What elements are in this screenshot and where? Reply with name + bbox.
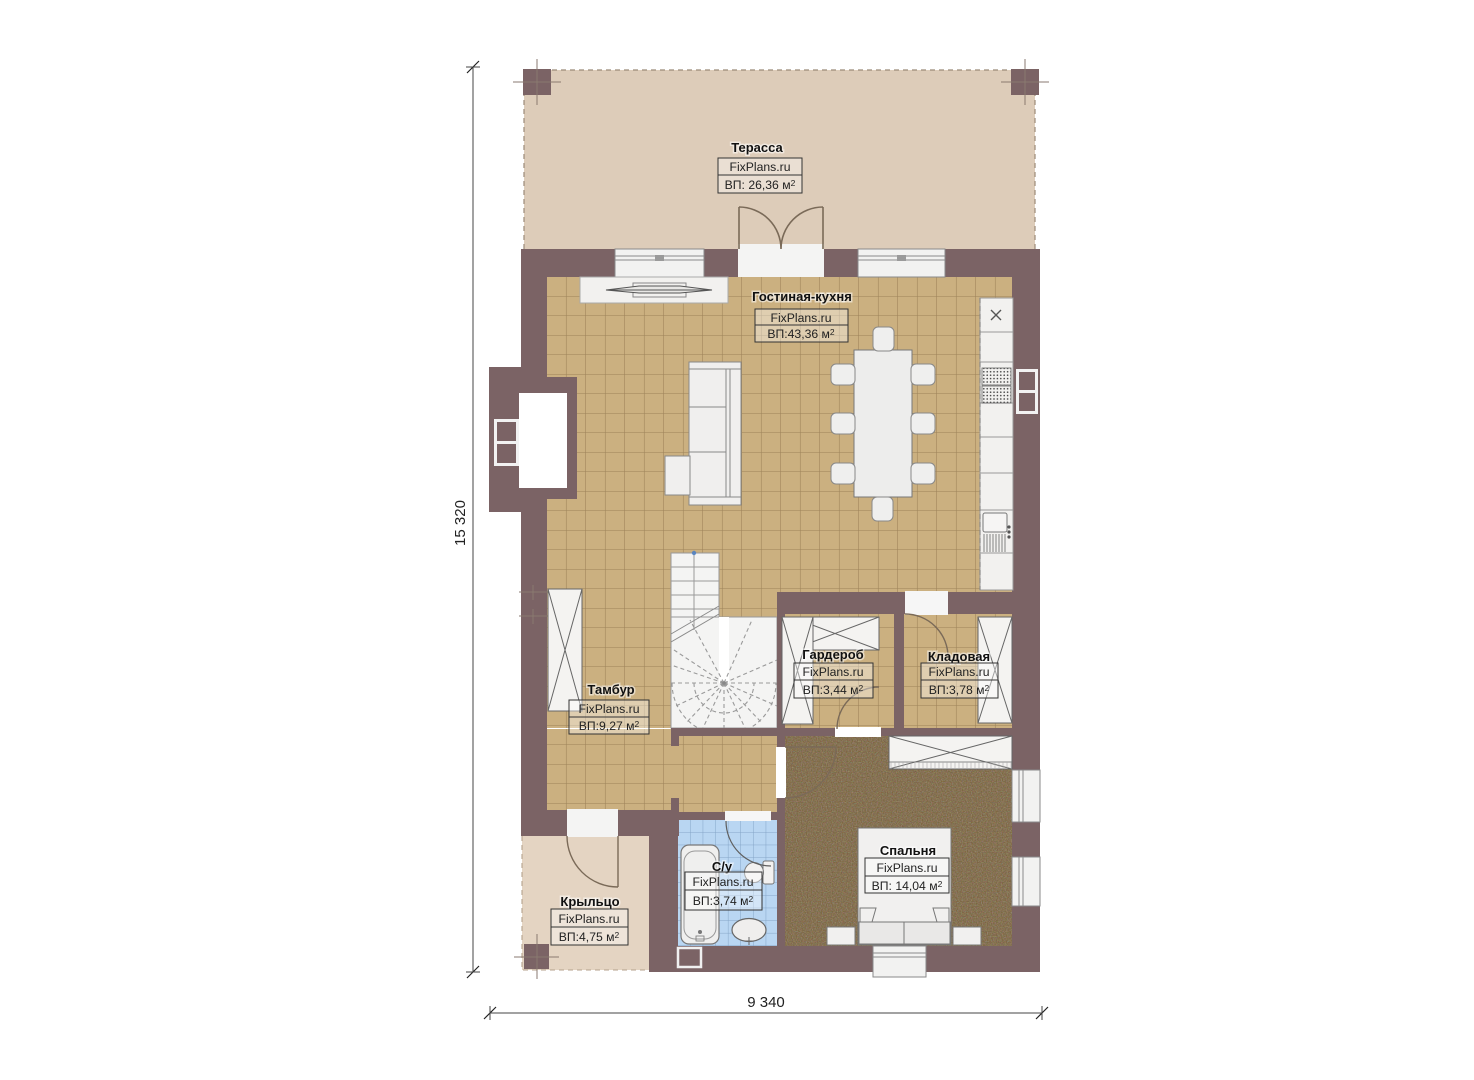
svg-text:Гардероб: Гардероб <box>802 647 863 662</box>
svg-text:Крыльцо: Крыльцо <box>560 894 619 909</box>
svg-text:9 340: 9 340 <box>747 994 785 1011</box>
svg-text:FixPlans.ru: FixPlans.ru <box>579 702 640 716</box>
svg-text:ВП:4,75 м2: ВП:4,75 м2 <box>559 930 620 944</box>
svg-text:Спальня: Спальня <box>880 843 936 858</box>
svg-text:FixPlans.ru: FixPlans.ru <box>693 875 754 889</box>
svg-text:Тамбур: Тамбур <box>587 682 634 697</box>
svg-text:FixPlans.ru: FixPlans.ru <box>803 665 864 679</box>
svg-text:ВП:3,44 м2: ВП:3,44 м2 <box>803 683 864 697</box>
svg-text:FixPlans.ru: FixPlans.ru <box>559 912 620 926</box>
svg-text:ВП:43,36 м2: ВП:43,36 м2 <box>767 327 835 341</box>
svg-text:ВП:9,27 м2: ВП:9,27 м2 <box>579 719 640 733</box>
svg-text:ВП:3,74 м2: ВП:3,74 м2 <box>693 894 754 908</box>
svg-text:FixPlans.ru: FixPlans.ru <box>877 861 938 875</box>
svg-text:Кладовая: Кладовая <box>928 649 990 664</box>
svg-text:FixPlans.ru: FixPlans.ru <box>771 311 832 325</box>
svg-text:ВП: 26,36 м2: ВП: 26,36 м2 <box>725 178 796 192</box>
svg-text:FixPlans.ru: FixPlans.ru <box>730 160 791 174</box>
svg-text:Гостиная-кухня: Гостиная-кухня <box>752 289 852 304</box>
svg-text:ВП:3,78 м2: ВП:3,78 м2 <box>929 683 990 697</box>
svg-text:ВП: 14,04 м2: ВП: 14,04 м2 <box>872 879 943 893</box>
svg-text:Терасса: Терасса <box>731 140 783 155</box>
svg-text:FixPlans.ru: FixPlans.ru <box>929 665 990 679</box>
svg-text:15 320: 15 320 <box>452 500 469 546</box>
